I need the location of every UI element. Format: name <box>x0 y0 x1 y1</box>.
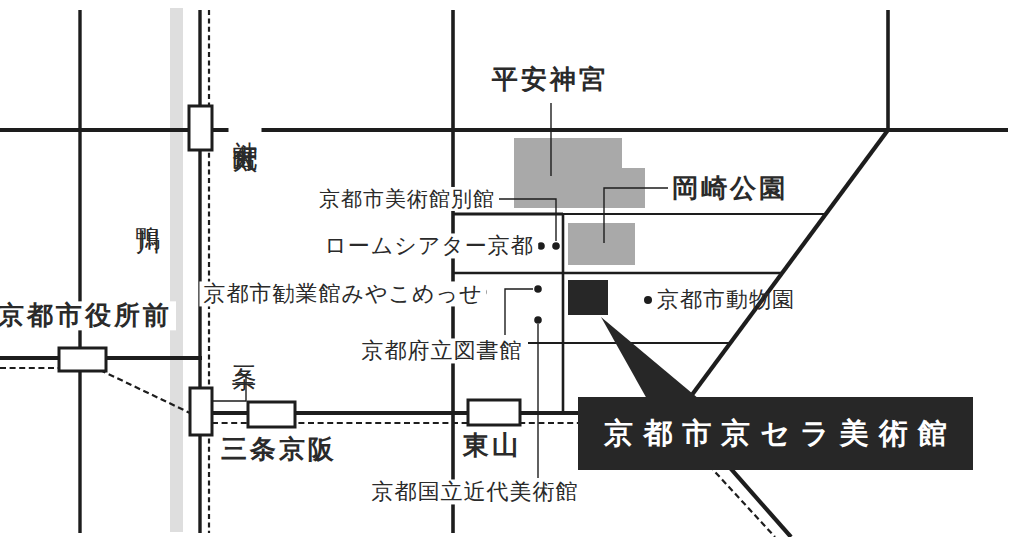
label-okazaki-park: 岡崎公園 <box>672 175 788 202</box>
location-dot-modern-art-museum <box>534 316 542 324</box>
kyocera-museum-title: 京都市京セラ美術館 <box>594 414 956 454</box>
location-dot-kyoto-zoo <box>644 296 652 304</box>
label-station-sanjo-keihan: 三条京阪 <box>217 435 341 464</box>
label-miyako-messe: 京都市勧業館みやこめっせ <box>199 281 486 306</box>
label-kamo-river: 鴨川 <box>136 207 161 211</box>
label-modern-art-museum: 京都国立近代美術館 <box>368 479 583 504</box>
location-dot-museum-annex <box>552 242 560 250</box>
label-rohm-theatre: ロームシアター京都 <box>320 233 538 258</box>
station-marker-sanjo <box>190 388 212 435</box>
label-station-higashiyama: 東山 <box>459 431 525 460</box>
station-marker-kyoto-shiyakushomae <box>59 348 106 371</box>
station-marker-jingu-marutamachi <box>189 106 212 150</box>
station-marker-higashiyama <box>468 400 520 425</box>
label-heian-jingu: 平安神宮 <box>492 66 608 93</box>
kyocera-museum-title-box: 京都市京セラ美術館 <box>578 397 973 470</box>
label-kyoto-zoo: 京都市動物園 <box>657 288 795 311</box>
kyocera-museum-marker <box>568 280 608 315</box>
label-station-sanjo: 三条 <box>228 345 261 351</box>
station-marker-sanjo-keihan <box>248 402 295 427</box>
okazaki-park-block <box>568 223 635 265</box>
location-dot-prefectural-library <box>534 285 542 293</box>
label-museum-annex: 京都市美術館別館 <box>315 187 499 211</box>
heian-shrine-grounds <box>514 138 645 208</box>
label-station-kyoto-shiyakushomae: 京都市役所前 <box>0 301 176 330</box>
leader-prefectural-library <box>505 289 533 335</box>
kamo-river-band <box>170 8 183 532</box>
kyocera-museum-pointer <box>601 317 699 399</box>
road-diagonal-upper <box>680 130 888 411</box>
label-station-jingu-marutamachi: 神宮丸太町 <box>229 120 262 132</box>
kyocera-museum-access-map: 平安神宮 岡崎公園 京都市美術館別館 ロームシアター京都 京都市勧業館みやこめっ… <box>0 0 1024 537</box>
leader-sanjo-station <box>213 374 246 401</box>
location-dot-rohm-theatre <box>537 242 545 250</box>
label-prefectural-library: 京都府立図書館 <box>358 338 527 363</box>
